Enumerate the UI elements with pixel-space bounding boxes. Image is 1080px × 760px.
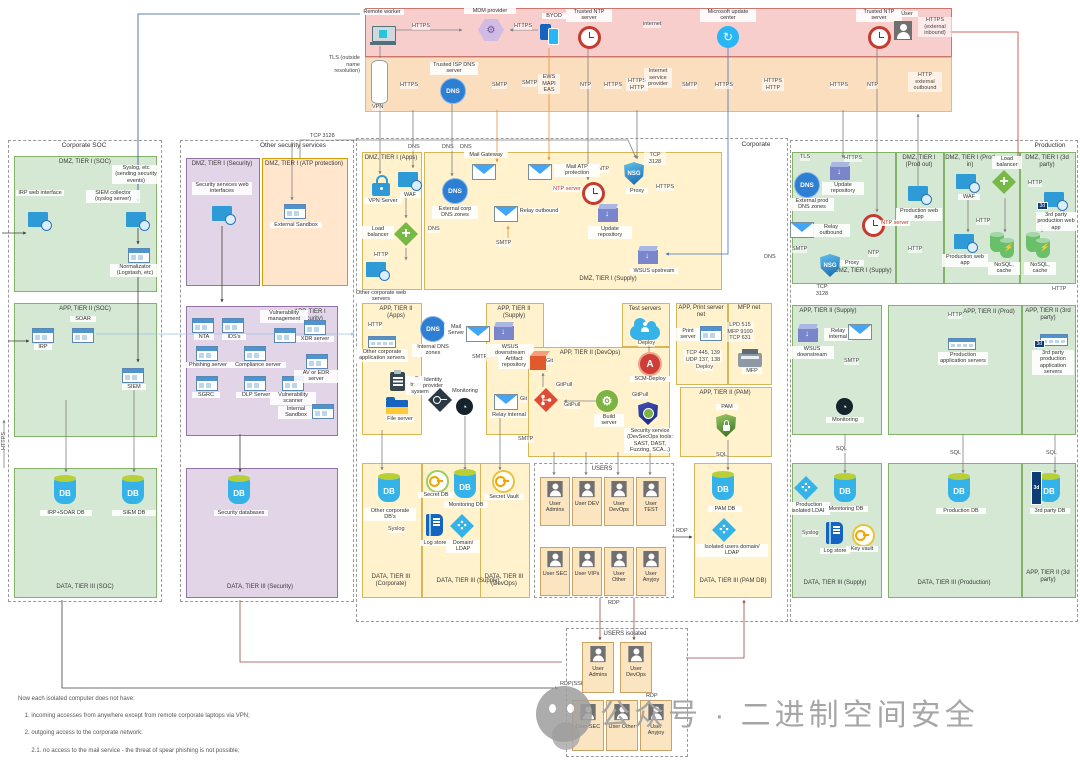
sql-label: SQL (716, 452, 727, 459)
soar-label: SOAR (70, 316, 96, 322)
print-server-label: Print server (676, 328, 700, 341)
ntp-label: NTP (867, 82, 878, 89)
user-test: User TEST (636, 477, 666, 526)
smtp-label: SMTP (472, 354, 487, 361)
normalizator-icon (128, 248, 150, 263)
security-db-label: Security databases (214, 510, 268, 516)
user-icon (643, 481, 658, 497)
syslog-label: Syslog (802, 530, 819, 537)
build-server-icon: ⚙ (596, 390, 618, 412)
prod-proxy-label: Proxy (840, 260, 864, 266)
threed-badge: 3d (1034, 340, 1045, 348)
smtp-label: SMTP (496, 240, 511, 247)
prod-wsus-icon (798, 328, 818, 342)
app-apps-label: APP, TIER II (Apps) (374, 306, 418, 320)
db-text: DB (127, 489, 139, 498)
isolated-ldap-label: Isolated users domain/ LDAP (696, 544, 768, 557)
mdm-label: MDM provider (464, 8, 516, 14)
smtp-label: SMTP (492, 82, 507, 89)
prod-data-label: DATA, TIER III (Production) (914, 580, 994, 587)
print-server-icon (700, 326, 722, 341)
syslog-note: Syslog, etc (sending security events) (112, 165, 160, 184)
devsecops-dot (643, 408, 654, 419)
third-party-app-icon: 3d (1040, 334, 1068, 346)
deploy-label: Deploy (696, 364, 713, 371)
mfp-net-label: MFP net (730, 305, 768, 312)
dns-text: DNS (426, 326, 440, 333)
vuln-mgmt-icon (274, 328, 296, 343)
argo-text: A (646, 359, 653, 370)
irp-soar-db-icon: DB (54, 478, 76, 504)
secret-vault-label: Secret Vault (484, 494, 524, 500)
relay-internal-label: Relay internal (490, 412, 528, 418)
user-anyjoy: User Anyjoy (636, 547, 666, 596)
prod-monitoring-db-icon: DB (834, 476, 856, 502)
corp-ntp-label: NTP server (552, 186, 582, 192)
note-line: 2. outgoing access to the corporate netw… (18, 729, 370, 738)
prod-web-in-icon (954, 234, 974, 249)
app-pam-label: APP, TIER II (PAM) (694, 390, 756, 397)
siem-db-label: SIEM DB (112, 510, 156, 516)
lock-icon (723, 425, 730, 431)
third-party-app-label: 3rd party production application servers (1032, 350, 1074, 375)
prod-relay-out-label: Relay outbound (812, 224, 850, 237)
xdr-label: XDR server (296, 336, 334, 342)
https-label: HTTPS (604, 82, 622, 89)
irp-label: IRP (34, 344, 52, 350)
secret-vault-icon (492, 470, 515, 493)
sgrc-icon (196, 376, 218, 391)
user-devops-label: User DevOps (606, 501, 632, 514)
tcp3128-label: TCP 3128 (644, 152, 666, 165)
user-sec: User SEC (540, 547, 570, 596)
secret-db-icon (426, 470, 449, 493)
irp-soar-db-label: IRP+SOAR DB (40, 510, 92, 516)
update-repo-label: Update repository (588, 226, 632, 239)
nta-icon (192, 318, 214, 333)
user-test-label: User TEST (638, 501, 664, 514)
relay-outbound-label: Relay outbound (518, 208, 560, 214)
nosql-cache-icon (1026, 234, 1052, 259)
sgrc-label: SGRC (192, 392, 220, 398)
scm-deploy-label: SCM-Deploy (630, 376, 670, 382)
prod-dmz-3d-label: DMZ, TIER I (3d party) (1022, 155, 1072, 169)
ntp-clock-icon (868, 26, 891, 49)
user-icon (894, 21, 912, 40)
print-ports-label: TCP 445, 139 UDP 137, 138 (684, 350, 722, 363)
gitpull-label: GitPull (556, 382, 572, 389)
prod-app-label: APP, TIER II (Prod) (962, 309, 1016, 316)
nosql-cache-label: NoSQL, cache (1024, 262, 1056, 275)
dmz-security-zone (186, 158, 260, 286)
watermark-text: 公众号 · 二进制空间安全 (600, 690, 979, 734)
byod-label: BYOD (542, 13, 566, 19)
note-line: Now each isolated computer does not have… (18, 695, 370, 704)
prod-data-supply-label: DATA, TIER III (Supply) (802, 580, 868, 587)
monitoring-label: Monitoring (448, 388, 482, 394)
db-text: DB (383, 487, 395, 496)
vuln-mgmt-label: Vulnerability management (260, 310, 308, 323)
data-pam-label: DATA, TIER III (PAM DB) (698, 578, 768, 585)
http-ext-out-label: HTTP external outbound (908, 72, 942, 92)
prod-app-zone (888, 305, 1022, 435)
artifact-repo-label: Artifact repository (498, 356, 530, 369)
dns-label: DNS (460, 144, 472, 151)
pam-label: PAM (716, 404, 738, 410)
data-corp-label: DATA, TIER III (Corporate) (364, 574, 418, 588)
prod-app-3d-label: APP, TIER II (3rd party) (1024, 308, 1072, 322)
user-icon (579, 551, 594, 567)
waf-label: WAF (400, 192, 420, 198)
app-supply-label: APP, TIER II (Supply) (490, 306, 538, 320)
prod-dmz-supply-label: DMZ, TIER I (Supply) (834, 268, 892, 275)
monitoring-icon: ◔ (456, 398, 473, 415)
third-party-web-label: 3rd party production web app (1036, 212, 1076, 231)
user-admins: User Admins (540, 477, 570, 526)
ext-corp-dns-label: External corp DNS zones (432, 206, 478, 219)
corp-db-label: Other corporate DB's (364, 508, 416, 521)
db-text: DB (1043, 487, 1055, 496)
http-label: HTTP (976, 218, 990, 225)
key-icon (855, 530, 866, 541)
byod-icon (540, 24, 560, 44)
iso-user-devops: User DevOps (620, 642, 652, 693)
gitpull-label: GitPull (632, 392, 648, 399)
ntp-clock-icon (578, 26, 601, 49)
corp-app-servers-label: Other corporate application servers (356, 349, 408, 362)
user-dev: User DEV (572, 477, 602, 526)
nta-label: NTA (194, 334, 214, 340)
security-web-label: Security services web interfaces (192, 182, 252, 195)
http-label: HTTP (374, 252, 388, 259)
tls-note: TLS (outside name resolution) (328, 55, 360, 75)
relay-internal-icon (494, 394, 518, 410)
iso-user-devops-label: User DevOps (622, 666, 650, 679)
user-icon (628, 646, 643, 662)
isp-text: Internet service provider (644, 68, 672, 88)
load-balancer-label: Load balancer (362, 226, 394, 239)
siem-collector-icon (126, 212, 146, 227)
dns-globe-icon: DNS (440, 78, 466, 104)
threed-badge: 3d (1031, 471, 1042, 505)
user-other: User Other (604, 547, 634, 596)
user-devops: User DevOps (604, 477, 634, 526)
update-repo-icon (598, 208, 618, 222)
ntp-label: NTP (580, 82, 591, 89)
dmz-security-label: DMZ, TIER I (Security) (188, 161, 256, 168)
av-edr-label: AV or EDR server (294, 370, 338, 383)
db-text: DB (839, 487, 851, 496)
third-party-web-icon: 3d (1044, 192, 1064, 207)
nsg-text: NSG (823, 263, 836, 269)
prod-monitoring-db-label: Monitoring DB (824, 506, 868, 512)
smtp-label: SMTP (522, 80, 537, 87)
corp-monitoring-db-icon: DB (454, 472, 476, 498)
smtp-label: SMTP (844, 358, 859, 365)
dmz-supply-label: DMZ, TIER I (Supply) (566, 276, 650, 283)
prod-update-repo-icon (830, 166, 850, 180)
file-server-label: File server (386, 416, 414, 422)
corp-db-icon: DB (378, 476, 400, 502)
compliance-label: Compliance server (230, 362, 286, 368)
relay-outbound-icon (494, 206, 518, 222)
watermark-logo-icon (536, 686, 592, 742)
external-sandbox-icon (284, 204, 306, 219)
prod-dmz-out-label: DMZ, TIER I (Prod out) (897, 155, 941, 169)
third-party-db-icon: 3dDB (1038, 476, 1060, 502)
mail-atp-icon (528, 164, 552, 180)
external-sandbox-label: External Sandbox (270, 222, 322, 228)
iso-user-admins: User Admins (582, 642, 614, 693)
user-icon (547, 551, 562, 567)
key-vault-icon (852, 524, 875, 547)
other-web-label: Other corporate web servers (354, 290, 408, 303)
tcp3128-label: TCP 3128 (810, 284, 834, 297)
tcp3128-label: TCP 3128 (310, 133, 335, 140)
https-http-label: HTTPS HTTP (762, 78, 784, 91)
https-label: HTTPS (400, 82, 418, 89)
siem-db-icon: DB (122, 478, 144, 504)
prod-monitoring-label: Monitoring (826, 417, 864, 423)
https-label: HTTPS (830, 82, 848, 89)
sql-label: SQL (836, 446, 847, 453)
sql-label: SQL (1046, 450, 1057, 457)
third-party-db-label: 3rd party DB (1030, 508, 1070, 514)
db-text: DB (953, 487, 965, 496)
pam-db-label: PAM DB (708, 506, 742, 512)
production-title: Production (1026, 142, 1074, 149)
vuln-scanner-label: Vulnerability scanner (270, 392, 316, 405)
user-icon (643, 551, 658, 567)
prod-update-repo-label: Update repository (822, 182, 864, 195)
db-text: DB (717, 485, 729, 494)
data-devops-label: DATA, TIER III (DevOps) (482, 574, 526, 588)
http-label: HTTP (1052, 286, 1066, 293)
trusted-ntp-label: Trusted NTP server (566, 9, 612, 22)
irp-icon (32, 328, 54, 343)
phishing-label: Phishing server (184, 362, 232, 368)
internal-sandbox-icon (312, 404, 334, 419)
ntp-label: NTP (868, 250, 879, 257)
smtp-label: SMTP (792, 246, 807, 253)
production-db-icon: DB (948, 476, 970, 502)
bug-tracking-icon (390, 372, 405, 391)
log-store-icon (426, 514, 443, 536)
user-icon (611, 551, 626, 567)
person-glyph (641, 322, 649, 332)
corp-app-servers-icon (368, 336, 396, 348)
git-label: Git (546, 358, 553, 365)
dlp-icon (244, 376, 266, 391)
build-server-label: Build server (594, 414, 624, 427)
compliance-icon (244, 346, 266, 361)
mail-server-label: Mail Server (444, 324, 468, 337)
ms-update-label: Microsoft update center (700, 9, 756, 22)
remote-worker-icon (372, 26, 396, 42)
deploy-label: Deploy (638, 340, 655, 347)
file-server-icon (386, 400, 408, 414)
https-ext-in-label: HTTPS (external inbound) (918, 17, 952, 37)
users-label: USERS (584, 466, 620, 473)
siem-collector-label: SIEM collector (syslog server) (86, 190, 140, 203)
corporate-soc-title: Corporate SOC (46, 142, 122, 149)
irp-web-icon (28, 212, 48, 227)
threed-badge: 3d (1037, 202, 1048, 210)
prod-data-3d-label: APP, TIER II (3d party) (1024, 570, 1072, 584)
corp-monitoring-db-label: Monitoring DB (444, 502, 488, 508)
phishing-icon (196, 346, 218, 361)
internet-label: internet (643, 21, 661, 28)
http-label: HTTP (908, 246, 922, 253)
security-services-title: Other security services (240, 142, 346, 149)
soc-app-label: APP, TIER II (SOC) (30, 306, 140, 313)
nsg-text: NSG (627, 171, 640, 177)
irp-web-label: IRP web interface (16, 190, 64, 196)
security-db-icon: DB (228, 478, 250, 504)
mail-atp-label: Mail ATP protection (554, 164, 600, 177)
proxy-label: Proxy (626, 188, 648, 194)
data-security-zone (186, 468, 338, 598)
rdp-label: RDP (676, 528, 688, 535)
user-vips-label: User VIPs (574, 571, 600, 577)
plus-glyph: + (401, 225, 410, 243)
prod-wsus-label: WSUS downstream (790, 346, 834, 359)
db-text: DB (459, 483, 471, 492)
gitpull-label: GitPull (564, 402, 580, 409)
other-web-icon (366, 262, 386, 277)
key-icon (429, 476, 440, 487)
https-vertical-label: HTTPS (1, 432, 8, 450)
db-text: DB (59, 489, 71, 498)
user-icon (579, 481, 594, 497)
prod-waf-icon (956, 174, 976, 189)
user-icon (547, 481, 562, 497)
user-dev-label: User DEV (574, 501, 600, 507)
production-db-label: Production DB (936, 508, 986, 514)
wsus-upstream-label: WSUS upstream (630, 268, 678, 274)
microsoft-update-icon: ↻ (717, 26, 739, 48)
http-label: HTTP (948, 312, 962, 319)
wsus-upstream-icon (638, 250, 658, 264)
isp-dns-label: Trusted ISP DNS server (430, 62, 478, 75)
test-servers-label: Test servers (624, 306, 666, 313)
user-admins-label: User Admins (542, 501, 568, 514)
user-label: User (896, 11, 918, 17)
soc-data-label: DATA, TIER III (SOC) (30, 584, 140, 591)
wsus-downstream-icon (494, 326, 514, 340)
prod-log-store-icon (826, 522, 843, 544)
security-web-icon (212, 206, 232, 221)
ext-corp-dns-icon: DNS (442, 178, 468, 204)
mail-gateway-icon (472, 164, 496, 180)
key-vault-label: Key vault (846, 546, 878, 552)
dns-label: DNS (764, 254, 776, 261)
https-label: HTTPS (514, 23, 532, 30)
prod-web-out-icon (908, 186, 928, 201)
user-icon (611, 481, 626, 497)
prod-app-servers-label: Production application servers (938, 352, 988, 365)
siem-icon (122, 368, 144, 383)
key-icon (433, 396, 441, 404)
git-label: Git (520, 396, 527, 403)
https-label: HTTPS (412, 23, 430, 30)
remote-worker-label: Remote worker (360, 9, 404, 15)
dns-text: DNS (446, 88, 460, 95)
soar-icon (72, 328, 94, 343)
https-label: HTTPS (844, 155, 862, 162)
mail-gateway-label: Mail Gateway (464, 152, 508, 158)
nosql-cache-label: NoSQL, cache (988, 262, 1020, 275)
ids-label: IDS's (222, 334, 246, 340)
user-other-label: User Other (606, 571, 632, 584)
key-icon (495, 476, 506, 487)
db-text: DB (233, 489, 245, 498)
secret-db-label: Secret DB (418, 492, 454, 498)
mfp-icon (738, 353, 762, 367)
vpn-server-icon (372, 183, 390, 196)
ews-label: EWS MAPI EAS (538, 74, 560, 94)
vpn-server-label: VPN Server (364, 198, 402, 204)
prod-app-servers-icon (948, 338, 976, 350)
http-label: HTTP (368, 322, 382, 329)
dns-text: DNS (800, 182, 814, 189)
syslog-label: Syslog (388, 526, 405, 533)
mfp-ports-label: LPD 515 MFP 9100 TCP 631 (726, 322, 754, 342)
internal-dns-label: Internal DNS zones (412, 344, 454, 357)
identity-provider-label: Identity provider (414, 377, 452, 390)
mfp-label: MFP (742, 368, 762, 374)
normalizator-label: Normalizator (Logstash, etc) (110, 264, 160, 277)
iso-user-admins-label: User Admins (584, 666, 612, 679)
av-edr-icon (306, 354, 328, 369)
prod-ntp-label: NTP server (880, 220, 910, 226)
xdr-icon (304, 320, 326, 335)
http-label: HTTP (1028, 180, 1042, 187)
waf-icon (398, 172, 418, 187)
prod-app-supply-label: APP, TIER II (Supply) (798, 308, 858, 315)
prod-waf-label: WAF (958, 194, 980, 200)
tls-label: TLS (800, 154, 810, 161)
prod-ext-dns-icon: DNS (794, 172, 820, 198)
smtp-label: SMTP (682, 82, 697, 89)
prod-relay-out-icon (790, 222, 814, 238)
user-anyjoy-label: User Anyjoy (638, 571, 664, 584)
user-icon (590, 646, 605, 662)
prod-relay-icon (848, 324, 872, 340)
wsus-downstream-label: WSUS downstream (486, 344, 534, 357)
dns-text: DNS (448, 188, 462, 195)
prod-dmz-in-label: DMZ, TIER I (Prod in) (944, 155, 996, 169)
internal-dns-icon: DNS (420, 316, 446, 342)
pam-db-icon: DB (712, 474, 734, 500)
https-label: HTTPS (656, 184, 674, 191)
prod-lb-label: Load balancer (992, 156, 1022, 169)
vpn-tunnel-icon (371, 60, 388, 104)
rdp-label: RDP (608, 600, 620, 607)
print-net-label: APP, Print server net (678, 305, 724, 319)
data-security-label: DATA, TIER III (Security) (200, 584, 320, 591)
note-line: 1. incoming accesses from anywhere excep… (18, 712, 370, 721)
security-service-label: Security service (DevSecOps tools: SAST,… (624, 428, 676, 453)
siem-label: SIEM (122, 384, 146, 390)
scm-deploy-icon: A (638, 352, 662, 376)
gear-icon: ⚙ (487, 25, 496, 36)
user-sec-label: User SEC (542, 571, 568, 577)
ids-icon (222, 318, 244, 333)
corporate-title: Corporate (732, 141, 780, 148)
artifact-repo-icon (530, 356, 546, 370)
dns-label: DNS (442, 144, 454, 151)
